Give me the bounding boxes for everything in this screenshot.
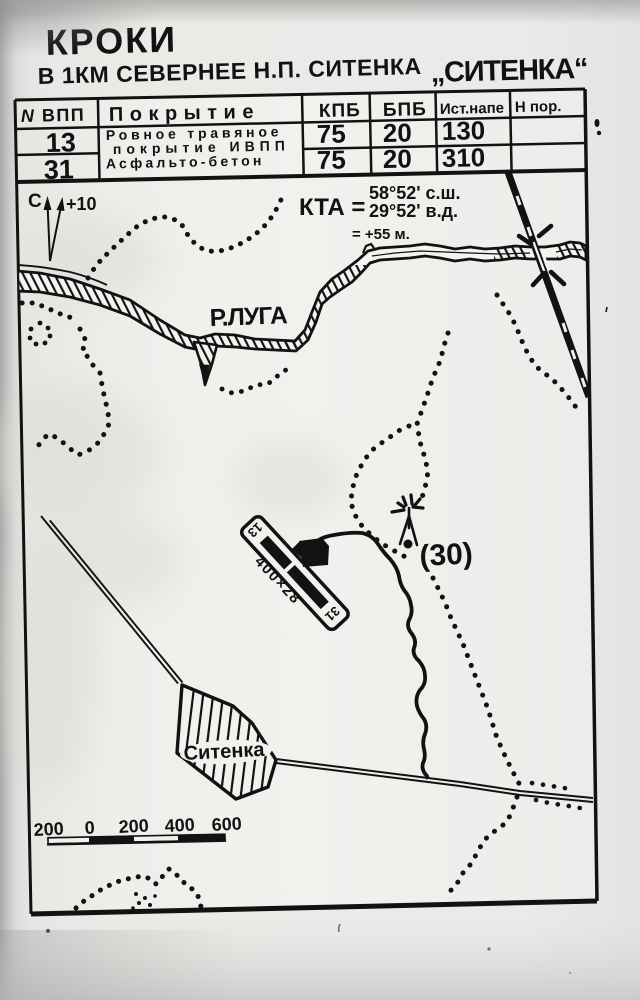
svg-text:20: 20 [382, 143, 412, 174]
svg-text:13: 13 [45, 127, 76, 158]
svg-text:75: 75 [316, 144, 346, 175]
svg-text:С: С [28, 191, 42, 212]
svg-text:600: 600 [211, 813, 242, 835]
svg-text:31: 31 [43, 154, 74, 185]
svg-text:0: 0 [84, 817, 95, 837]
svg-text:200: 200 [33, 818, 64, 840]
svg-text:310: 310 [441, 142, 485, 173]
svg-text:29°52' в.д.: 29°52' в.д. [369, 201, 458, 221]
svg-text:Ситенка: Ситенка [183, 739, 266, 765]
svg-text:КТА =: КТА = [299, 194, 365, 221]
svg-text:58°52' с.ш.: 58°52' с.ш. [369, 183, 461, 203]
svg-text:Р.ЛУГА: Р.ЛУГА [209, 302, 288, 332]
svg-text:= +55 м.: = +55 м. [352, 226, 410, 243]
svg-text:„СИТЕНКА“: „СИТЕНКА“ [430, 53, 587, 89]
svg-text:Покрытие: Покрытие [109, 101, 261, 126]
svg-text:Асфальто-бетон: Асфальто-бетон [106, 152, 265, 171]
svg-text:400: 400 [164, 814, 195, 836]
svg-text:(30): (30) [419, 537, 474, 573]
svg-text:Н пор.: Н пор. [515, 98, 562, 116]
svg-text:+10: +10 [66, 194, 97, 214]
svg-text:N ВПП: N ВПП [21, 105, 86, 126]
svg-text:200: 200 [118, 815, 149, 837]
